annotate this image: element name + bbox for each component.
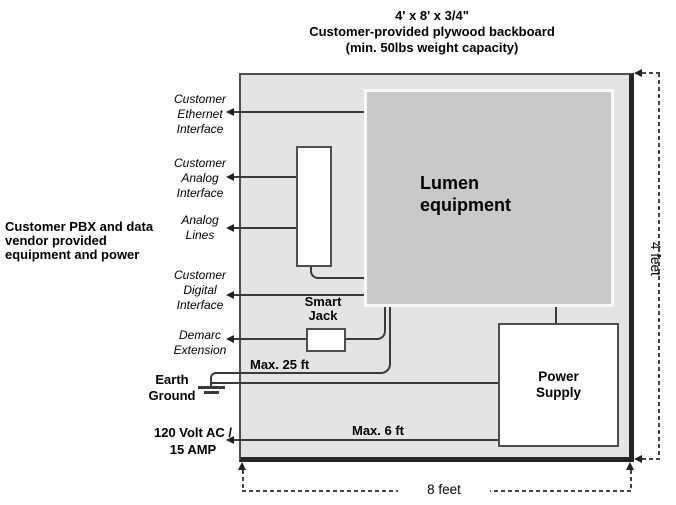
height-dimension-line — [642, 458, 660, 460]
smart-jack-label: Smart Jack — [296, 295, 350, 323]
demarc-extension-label: Demarc Extension — [164, 328, 236, 358]
analog-interface-line — [233, 176, 298, 178]
power-feed-line — [233, 439, 499, 441]
title-dimensions: 4' x 8' x 3/4" — [232, 8, 632, 24]
power-feed-label: 120 Volt AC / 15 AMP — [143, 424, 243, 458]
width-dimension-line — [630, 470, 632, 491]
smart-jack-box — [306, 328, 346, 352]
block-to-lumen-connector — [310, 267, 365, 279]
ethernet-interface-label: Customer Ethernet Interface — [164, 92, 236, 137]
power-supply-box: Power Supply — [498, 323, 619, 447]
left-arrow-icon — [634, 69, 642, 77]
ground-drop-connector — [210, 372, 222, 386]
max-6ft-label: Max. 6 ft — [352, 423, 404, 438]
punch-down-block — [296, 146, 332, 267]
title-capacity: (min. 50lbs weight capacity) — [232, 40, 632, 56]
ethernet-line — [233, 111, 366, 113]
analog-interface-label: Customer Analog Interface — [164, 156, 236, 201]
height-dimension-label: 4 feet — [648, 242, 663, 276]
width-dimension-label: 8 feet — [398, 482, 490, 498]
max-25ft-label: Max. 25 ft — [250, 357, 309, 372]
lumen-equipment-label: Lumen equipment — [420, 172, 511, 216]
title: 4' x 8' x 3/4" Customer-provided plywood… — [232, 8, 632, 56]
width-dimension-line — [242, 470, 244, 491]
earth-ground-label: Earth Ground — [136, 372, 208, 404]
ground-to-power-supply-line — [212, 382, 499, 384]
digital-interface-label: Customer Digital Interface — [164, 268, 236, 313]
plywood-backboard-diagram: 4' x 8' x 3/4" Customer-provided plywood… — [0, 0, 676, 505]
title-description: Customer-provided plywood backboard — [232, 24, 632, 40]
customer-pbx-note: Customer PBX and data vendor provided eq… — [5, 220, 185, 262]
analog-lines-line — [233, 227, 298, 229]
power-supply-label: Power Supply — [536, 369, 581, 401]
left-arrow-icon — [634, 455, 642, 463]
up-arrow-icon — [626, 462, 634, 470]
up-arrow-icon — [238, 462, 246, 470]
lumen-to-power-supply-line — [555, 305, 557, 325]
